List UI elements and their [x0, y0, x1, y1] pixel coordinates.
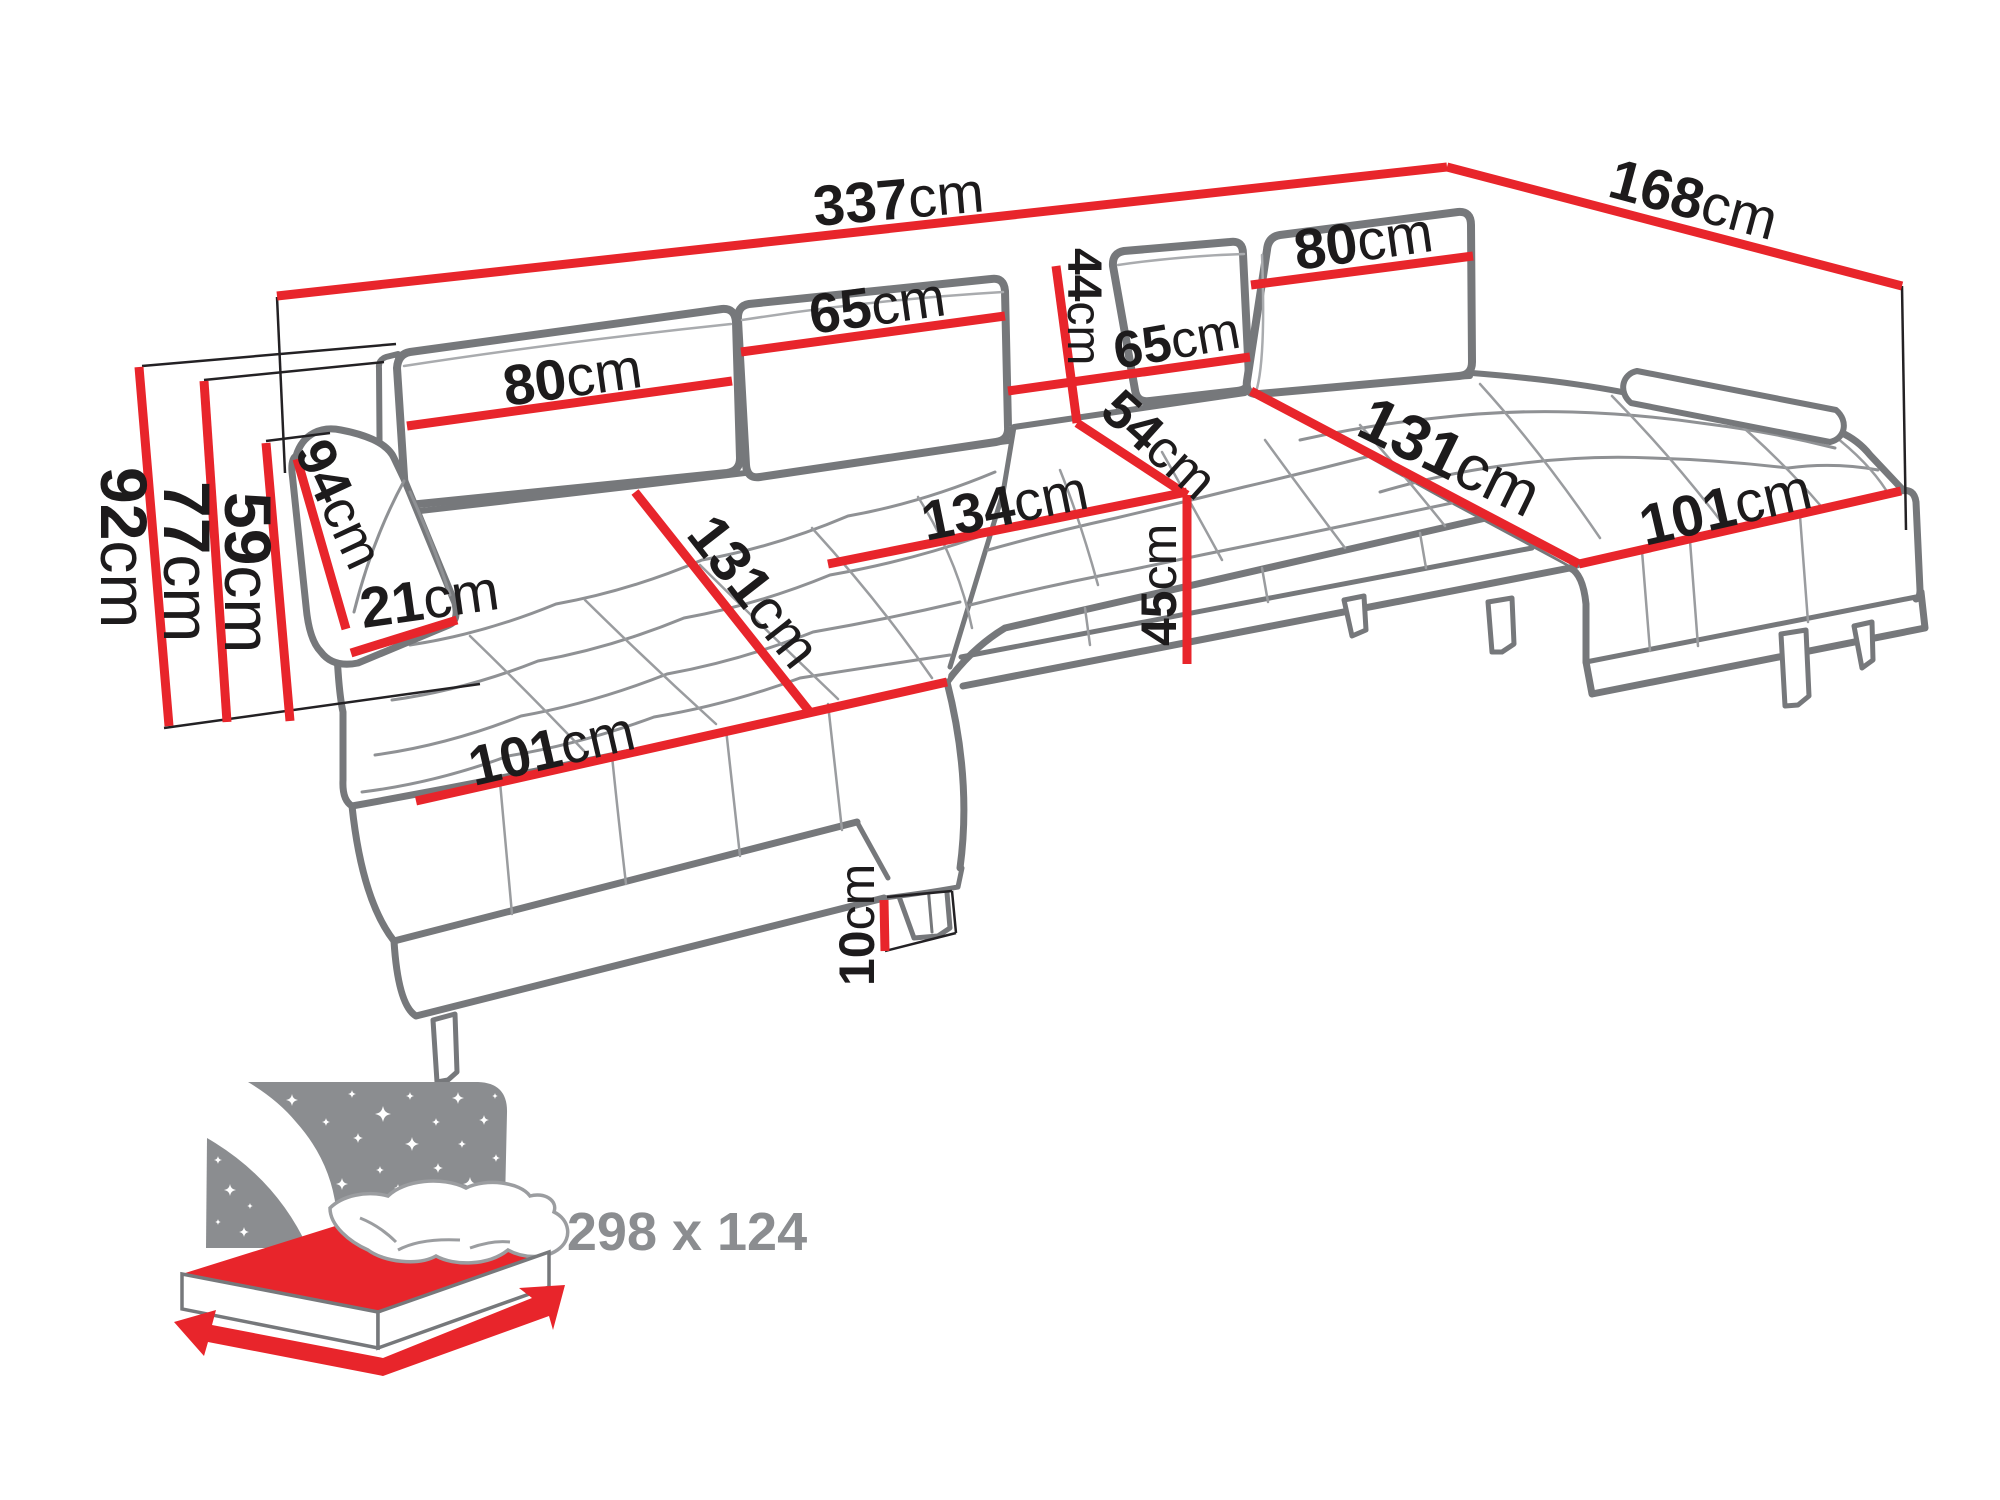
svg-text:59cm: 59cm — [211, 492, 285, 653]
svg-text:92cm: 92cm — [87, 467, 161, 628]
svg-text:44cm: 44cm — [1057, 248, 1110, 365]
svg-text:168cm: 168cm — [1603, 147, 1785, 253]
svg-text:45cm: 45cm — [1131, 524, 1187, 646]
svg-text:298 x 124: 298 x 124 — [567, 1202, 807, 1262]
svg-text:337cm: 337cm — [811, 160, 987, 239]
svg-text:10cm: 10cm — [829, 864, 885, 986]
